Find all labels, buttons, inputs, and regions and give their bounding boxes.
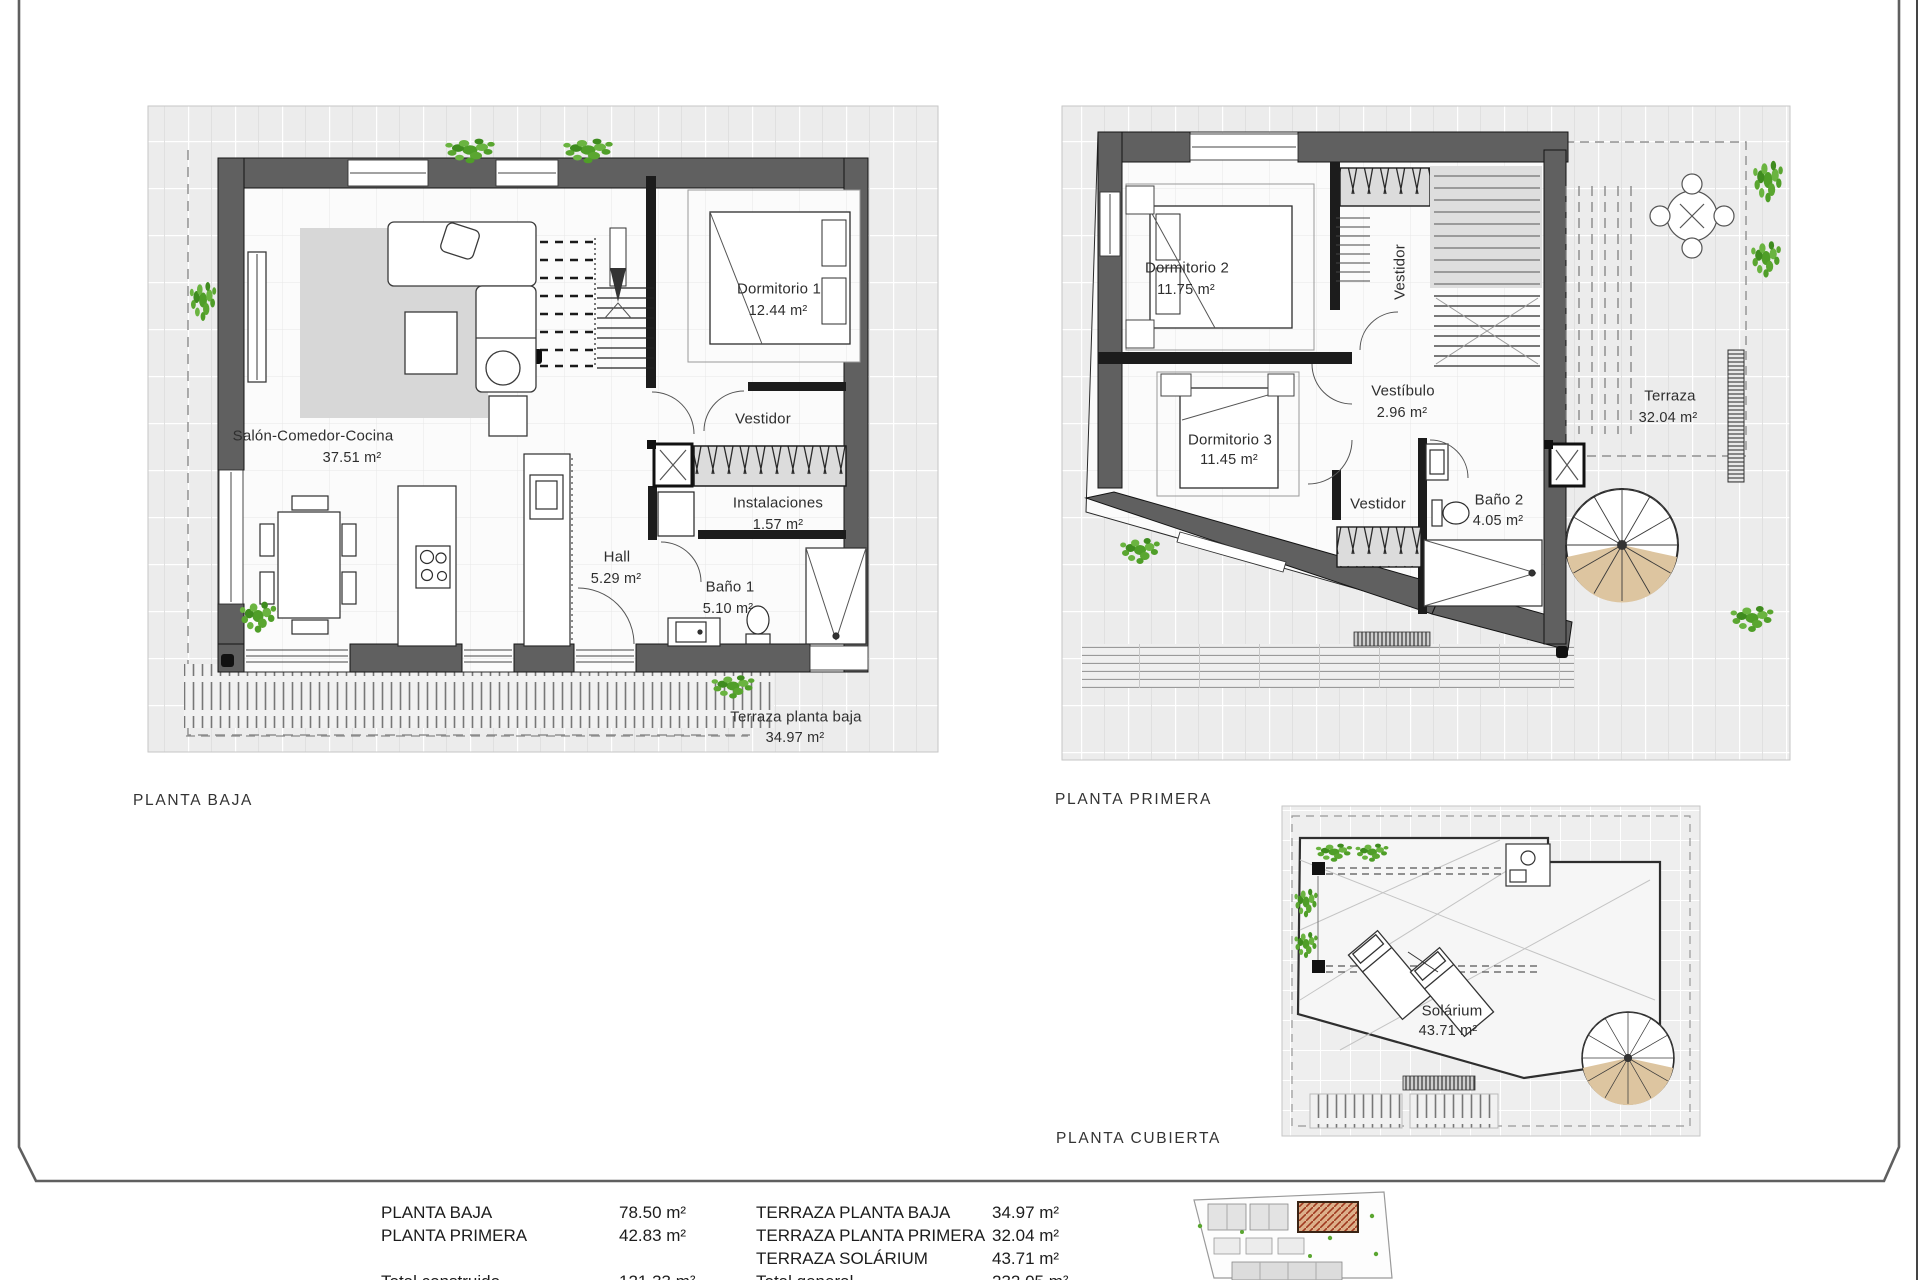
summary-label: PLANTA BAJA [381, 1203, 492, 1223]
room-area-bano1: 5.10 m² [703, 601, 754, 617]
room-label-bano2: Baño 2 [1475, 492, 1524, 509]
room-area-instalaciones: 1.57 m² [753, 517, 804, 533]
spiral-stair [1566, 489, 1678, 602]
summary-value: 43.71 m² [992, 1249, 1059, 1269]
summary-value: 42.83 m² [619, 1226, 686, 1246]
roof-kitchenette [1506, 844, 1550, 886]
room-area-solarium: 43.71 m² [1419, 1023, 1478, 1039]
summary-label: TERRAZA PLANTA BAJA [756, 1203, 950, 1223]
room-area-dormitorio1: 12.44 m² [749, 303, 808, 319]
roof-plan [1282, 806, 1700, 1136]
summary-value: 121.33 m² [619, 1272, 696, 1280]
floorplan-drawing [0, 0, 1920, 1280]
room-label-vestibulo: Vestíbulo [1371, 383, 1435, 400]
summary-label: TERRAZA SOLÁRIUM [756, 1249, 928, 1269]
room-area-terraza-p1: 32.04 m² [1639, 410, 1698, 426]
room-area-hall: 5.29 m² [591, 571, 642, 587]
room-label-vestidor-pasillo: Vestidor [1350, 496, 1406, 513]
summary-value: 32.04 m² [992, 1226, 1059, 1246]
title-planta-primera: PLANTA PRIMERA [1055, 791, 1212, 809]
room-label-dormitorio3: Dormitorio 3 [1188, 432, 1272, 449]
highlighted-unit [1298, 1202, 1358, 1232]
room-area-dormitorio2: 11.75 m² [1157, 282, 1215, 298]
title-planta-cubierta: PLANTA CUBIERTA [1056, 1130, 1221, 1148]
room-area-salon: 37.51 m² [323, 450, 382, 466]
room-area-bano2: 4.05 m² [1473, 513, 1524, 529]
summary-value: 34.97 m² [992, 1203, 1059, 1223]
room-label-dormitorio2: Dormitorio 2 [1145, 260, 1229, 277]
room-area-dormitorio3: 11.45 m² [1200, 452, 1258, 468]
summary-value: 232.05 m² [992, 1272, 1069, 1280]
room-area-terraza-pb: 34.97 m² [766, 730, 825, 746]
stairs-first [1430, 166, 1542, 366]
room-label-vestidor-armario: Vestidor [1392, 244, 1409, 300]
room-label-dormitorio1: Dormitorio 1 [737, 281, 821, 298]
room-label-hall: Hall [604, 549, 631, 566]
room-label-bano1: Baño 1 [706, 579, 755, 596]
summary-label: TERRAZA PLANTA PRIMERA [756, 1226, 985, 1246]
summary-label: PLANTA PRIMERA [381, 1226, 527, 1246]
room-label-terraza-pb: Terraza planta baja [730, 709, 861, 726]
room-area-vestibulo: 2.96 m² [1377, 405, 1428, 421]
summary-label: Total general [756, 1272, 853, 1280]
room-label-solarium: Solárium [1422, 1003, 1483, 1020]
room-label-salon: Salón-Comedor-Cocina [233, 428, 394, 445]
room-label-vestidor-pb: Vestidor [735, 411, 791, 428]
summary-value: 78.50 m² [619, 1203, 686, 1223]
room-label-terraza-p1: Terraza [1644, 388, 1695, 405]
roof-spiral-stair [1582, 1012, 1674, 1105]
summary-label: Total construido [381, 1272, 500, 1280]
room-label-instalaciones: Instalaciones [733, 495, 823, 512]
privacy-screen [1728, 350, 1744, 482]
bed-dormitorio1 [688, 190, 860, 362]
site-plan-minimap [1180, 1186, 1410, 1280]
title-planta-baja: PLANTA BAJA [133, 792, 253, 810]
first-floor-plan [1062, 106, 1790, 760]
floorplan-sheet: Salón-Comedor-Cocina 37.51 m² Dormitorio… [0, 0, 1920, 1280]
